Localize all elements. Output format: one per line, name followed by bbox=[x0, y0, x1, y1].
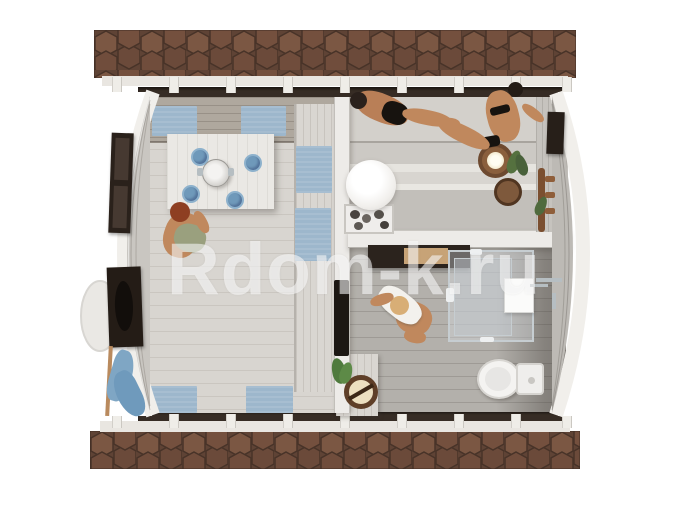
tea-cup bbox=[244, 154, 262, 172]
hair-bun bbox=[508, 82, 523, 97]
person-sauna-sitting bbox=[432, 78, 552, 170]
bench-mat-2 bbox=[295, 208, 331, 261]
window-pane bbox=[114, 138, 129, 180]
bathroom-door-dark bbox=[334, 280, 349, 356]
roof-strip-bottom bbox=[90, 431, 580, 474]
shower-cabin bbox=[448, 250, 534, 342]
toilet-bowl bbox=[477, 359, 521, 399]
counter-board bbox=[404, 248, 448, 264]
floor-mat-1 bbox=[150, 386, 197, 413]
rafter-tail bbox=[454, 414, 464, 428]
hull-mask-right bbox=[558, 92, 650, 416]
tea-cup bbox=[226, 191, 244, 209]
rafter-tail bbox=[340, 414, 350, 428]
shower-handle bbox=[470, 249, 482, 255]
flush-button bbox=[528, 377, 535, 384]
rafter-tail bbox=[112, 77, 122, 93]
rafter-tail bbox=[226, 414, 236, 428]
samovar bbox=[202, 159, 230, 187]
towel-bar bbox=[536, 278, 562, 282]
shower-handle bbox=[480, 337, 494, 342]
person-lounge-sitting bbox=[158, 200, 220, 264]
toilet-tank bbox=[516, 363, 544, 395]
rafter-tail bbox=[397, 414, 407, 428]
bench-mat-1 bbox=[296, 146, 332, 193]
rafter-tail bbox=[511, 414, 521, 428]
person-bathroom bbox=[368, 280, 438, 352]
window-pane bbox=[112, 186, 127, 228]
wall-hook bbox=[545, 208, 555, 214]
hair-dark bbox=[350, 92, 367, 109]
samovar-handle bbox=[228, 168, 234, 176]
rafter-tail bbox=[562, 77, 572, 93]
hanging-rug-1 bbox=[152, 106, 197, 136]
window-left bbox=[108, 133, 133, 234]
floorplan-scene: Rdom-k.ru bbox=[0, 0, 690, 513]
rafter-tail bbox=[112, 414, 122, 428]
rafter-tail bbox=[283, 414, 293, 428]
entrance-door bbox=[107, 266, 144, 347]
hanging-rug-2 bbox=[241, 106, 286, 136]
rafter-tail bbox=[169, 414, 179, 428]
door-leaf bbox=[114, 281, 134, 332]
wall-hook bbox=[545, 176, 555, 182]
rafter-tail bbox=[169, 77, 179, 93]
floor-mat-2 bbox=[246, 386, 293, 413]
shower-handle bbox=[446, 288, 454, 302]
lamp-sphere bbox=[346, 160, 396, 210]
bucket-handle bbox=[348, 383, 374, 400]
samovar-handle bbox=[197, 168, 203, 176]
hair-red bbox=[170, 202, 190, 222]
shower-arm bbox=[530, 284, 548, 287]
rafter-tail bbox=[226, 77, 236, 93]
towel-bar bbox=[552, 293, 556, 309]
sauna-bucket-2 bbox=[494, 178, 522, 206]
rafter-tail bbox=[562, 414, 572, 428]
rafter-tail bbox=[283, 77, 293, 93]
hull-mask-left bbox=[56, 92, 152, 416]
